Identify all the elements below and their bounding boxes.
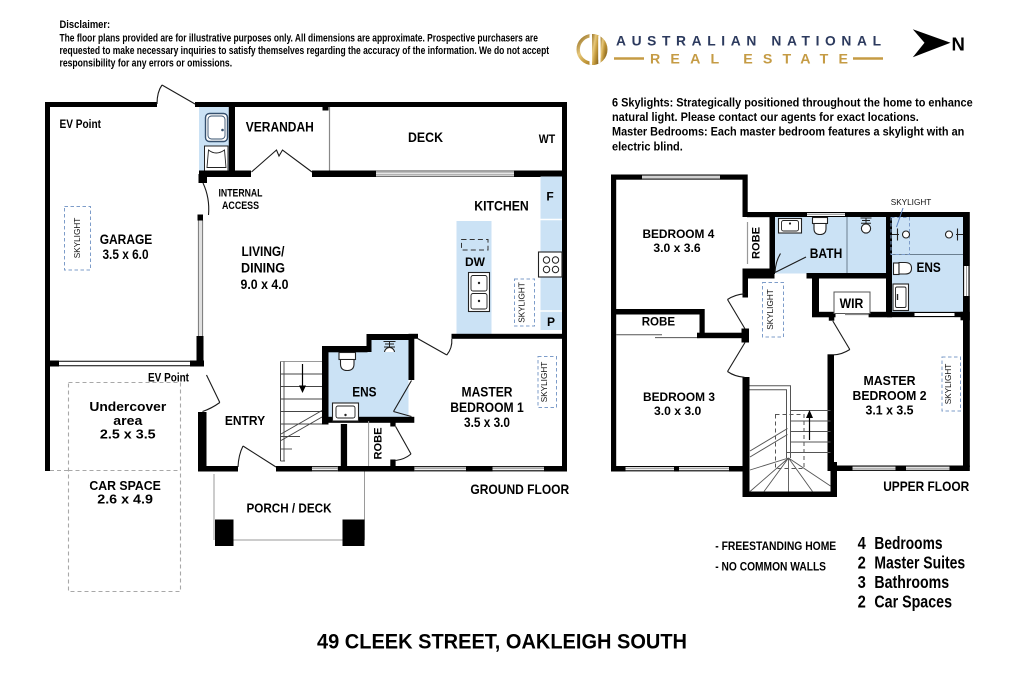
svg-text:3.0 x 3.0: 3.0 x 3.0: [654, 404, 702, 418]
svg-text:4: 4: [858, 533, 866, 553]
svg-text:ROBE: ROBE: [373, 428, 385, 460]
svg-text:2: 2: [858, 552, 866, 572]
svg-text:UPPER FLOOR: UPPER FLOOR: [883, 479, 969, 494]
svg-text:WIR: WIR: [840, 296, 864, 311]
svg-text:GROUND FLOOR: GROUND FLOOR: [470, 482, 569, 497]
svg-text:CAR SPACE: CAR SPACE: [89, 478, 161, 493]
svg-text:MASTER: MASTER: [462, 385, 513, 400]
svg-text:SKYLIGHT: SKYLIGHT: [766, 289, 775, 330]
svg-text:Master Suites: Master Suites: [874, 552, 965, 572]
svg-text:SKYLIGHT: SKYLIGHT: [944, 364, 953, 405]
svg-text:DECK: DECK: [408, 130, 443, 145]
svg-text:SKYLIGHT: SKYLIGHT: [540, 362, 549, 403]
svg-text:PORCH / DECK: PORCH / DECK: [247, 501, 333, 516]
svg-text:49 CLEEK STREET, OAKLEIGH SOUT: 49 CLEEK STREET, OAKLEIGH SOUTH: [317, 630, 687, 653]
svg-text:3.5 x 6.0: 3.5 x 6.0: [102, 247, 148, 262]
svg-text:P: P: [547, 315, 555, 329]
svg-text:BEDROOM 4: BEDROOM 4: [642, 227, 714, 241]
svg-text:SKYLIGHT: SKYLIGHT: [891, 198, 932, 207]
svg-text:N: N: [952, 34, 965, 55]
svg-text:2.6 x 4.9: 2.6 x 4.9: [97, 492, 153, 507]
svg-text:EV Point: EV Point: [60, 117, 102, 131]
svg-text:3.1 x 3.5: 3.1 x 3.5: [866, 403, 914, 418]
svg-text:BATH: BATH: [810, 245, 843, 261]
svg-text:DW: DW: [465, 255, 486, 269]
svg-text:AUSTRALIAN NATIONAL: AUSTRALIAN NATIONAL: [616, 34, 881, 49]
svg-text:DINING: DINING: [241, 260, 285, 275]
svg-text:SKYLIGHT: SKYLIGHT: [73, 218, 82, 259]
svg-text:ROBE: ROBE: [642, 315, 675, 329]
svg-text:requested to make necessary in: requested to make necessary inquiries to…: [60, 45, 550, 57]
svg-text:ACCESS: ACCESS: [222, 200, 259, 212]
svg-text:3.0 x 3.6: 3.0 x 3.6: [653, 241, 701, 255]
svg-text:BEDROOM 3: BEDROOM 3: [643, 390, 715, 404]
svg-text:6 Skylights: Strategically pos: 6 Skylights: Strategically positioned th…: [612, 96, 973, 110]
svg-text:Bathrooms: Bathrooms: [874, 572, 949, 592]
svg-text:3.5 x 3.0: 3.5 x 3.0: [464, 415, 510, 430]
svg-text:9.0 x 4.0: 9.0 x 4.0: [241, 277, 289, 292]
svg-text:natural light. Please contact: natural light. Please contact our agents…: [612, 110, 919, 124]
svg-text:INTERNAL: INTERNAL: [219, 187, 263, 199]
svg-text:SKYLIGHT: SKYLIGHT: [518, 282, 527, 323]
svg-text:ENS: ENS: [916, 259, 940, 275]
svg-text:ENTRY: ENTRY: [225, 414, 266, 428]
svg-text:The floor plans provided are f: The floor plans provided are for illustr…: [60, 32, 538, 44]
svg-text:electric blind.: electric blind.: [612, 139, 683, 153]
svg-text:KITCHEN: KITCHEN: [474, 198, 529, 213]
svg-text:WT: WT: [539, 134, 555, 146]
svg-text:Undercover: Undercover: [89, 399, 166, 414]
svg-text:VERANDAH: VERANDAH: [246, 119, 314, 134]
svg-text:GARAGE: GARAGE: [100, 232, 153, 247]
svg-text:ROBE: ROBE: [751, 227, 763, 259]
svg-text:BEDROOM 1: BEDROOM 1: [450, 400, 524, 415]
svg-text:Bedrooms: Bedrooms: [874, 533, 942, 553]
svg-text:- NO COMMON WALLS: - NO COMMON WALLS: [715, 559, 826, 573]
svg-text:Disclaimer:: Disclaimer:: [60, 19, 111, 31]
svg-text:2.5 x 3.5: 2.5 x 3.5: [100, 427, 156, 442]
svg-text:- FREESTANDING HOME: - FREESTANDING HOME: [715, 539, 836, 553]
svg-text:responsibility for any errors: responsibility for any errors or omissio…: [60, 57, 233, 69]
svg-text:Master Bedrooms: Each master b: Master Bedrooms: Each master bedroom fea…: [612, 125, 964, 139]
svg-text:3: 3: [858, 572, 866, 592]
svg-text:area: area: [113, 413, 143, 428]
svg-text:MASTER: MASTER: [864, 373, 916, 388]
svg-text:LIVING/: LIVING/: [242, 244, 285, 259]
svg-text:2: 2: [858, 591, 866, 611]
svg-text:Car Spaces: Car Spaces: [874, 591, 952, 611]
svg-text:F: F: [546, 190, 553, 204]
svg-text:ENS: ENS: [352, 383, 376, 399]
svg-text:BEDROOM 2: BEDROOM 2: [853, 388, 927, 403]
